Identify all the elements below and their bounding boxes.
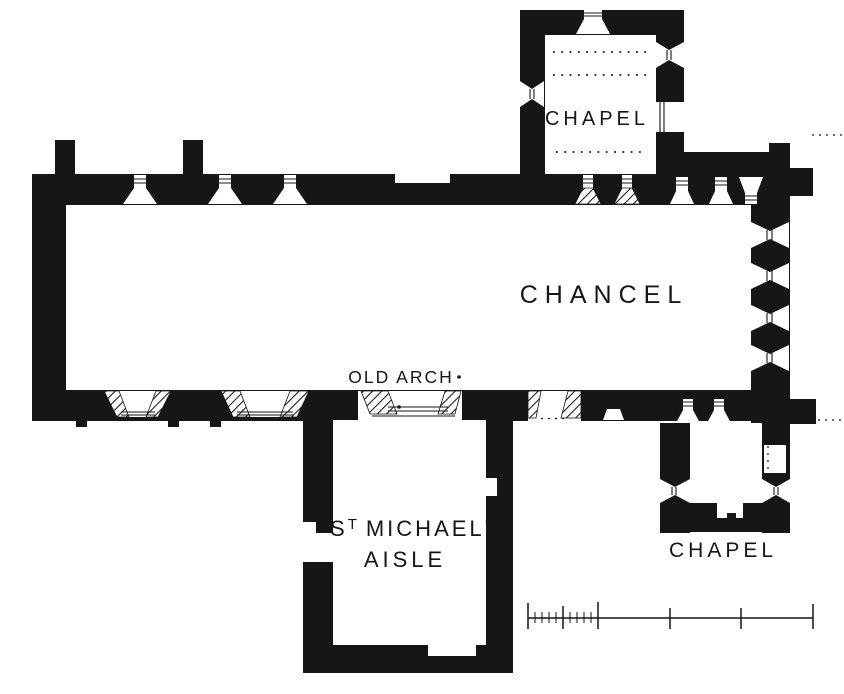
north-chapel-label: CHAPEL xyxy=(545,108,649,130)
north-buttress-1 xyxy=(55,140,75,176)
aisle-label-st: S xyxy=(330,516,348,541)
chapel-arch-neck-2 xyxy=(622,175,632,188)
old-arch-point-dot xyxy=(397,405,401,409)
northeast-buttress-horizontal xyxy=(789,168,813,196)
aisle-label-st-sup: T xyxy=(348,516,360,533)
sill-nub-2 xyxy=(168,418,179,427)
aisle-south-doorway-recess xyxy=(428,645,476,656)
old-arch-label-dot xyxy=(457,375,461,379)
chancel-label: CHANCEL xyxy=(520,281,688,309)
north-window-6-neck xyxy=(745,193,757,204)
aisle-west-door-rebate xyxy=(303,522,316,533)
aisle-east-wall-notch xyxy=(486,478,497,496)
north-chapel-east-wall xyxy=(656,10,684,176)
aisle-label-name: MICHAEL'S xyxy=(366,516,510,541)
south-chapel-recess-tab xyxy=(727,513,736,519)
north-chapel-interior xyxy=(545,35,656,174)
aisle-west-doorway xyxy=(303,533,333,562)
south-chapel-east-gap xyxy=(764,445,786,473)
sill-nub-1 xyxy=(76,418,87,427)
northeast-buttress-vertical xyxy=(769,143,790,157)
chancel-west-wall xyxy=(32,174,66,421)
floor-plan-sheet: CHAPEL CHANCEL OLD ARCH STMICHAEL'S AISL… xyxy=(0,0,844,694)
north-doorway-recess xyxy=(395,174,450,183)
south-arcade-neck-1 xyxy=(683,399,693,410)
floor-plan-drawing: CHAPEL CHANCEL OLD ARCH STMICHAEL'S AISL… xyxy=(0,0,844,694)
aisle-label-line2: AISLE xyxy=(364,547,446,572)
old-arch-label: OLD ARCH xyxy=(348,367,453,387)
aisle-south-wall xyxy=(303,645,513,673)
south-chapel-label: CHAPEL xyxy=(669,539,777,562)
aisle-east-wall xyxy=(486,420,513,673)
south-chapel-interior xyxy=(690,423,762,503)
north-buttress-2 xyxy=(183,140,203,176)
sill-nub-3 xyxy=(210,418,221,427)
southeast-buttress xyxy=(789,399,816,424)
south-arcade-neck-2 xyxy=(714,399,724,410)
chapel-arch-neck-1 xyxy=(583,175,593,188)
